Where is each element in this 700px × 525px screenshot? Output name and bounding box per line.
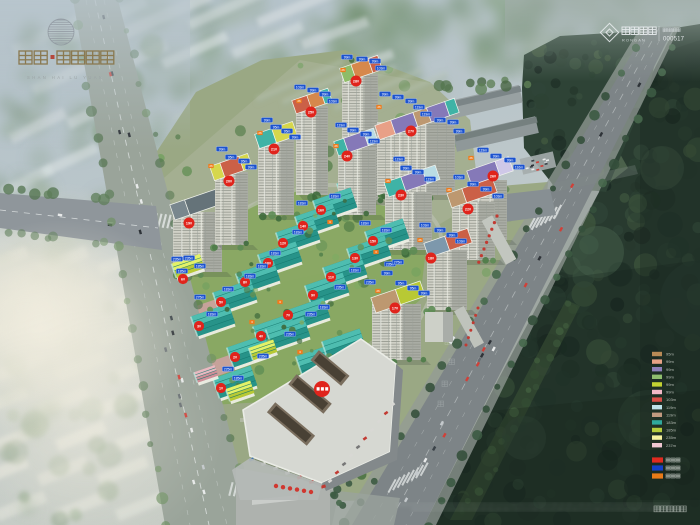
svg-text:119m: 119m bbox=[426, 177, 434, 181]
svg-text:99m: 99m bbox=[264, 118, 271, 122]
svg-text:99m: 99m bbox=[437, 118, 444, 122]
svg-text:183m: 183m bbox=[258, 264, 267, 268]
svg-text:95m: 95m bbox=[398, 281, 405, 285]
svg-text:99m: 99m bbox=[322, 92, 329, 96]
svg-text:183m: 183m bbox=[331, 194, 340, 198]
svg-text:22#: 22# bbox=[465, 207, 471, 211]
svg-text:14#: 14# bbox=[300, 224, 306, 228]
svg-text:235m: 235m bbox=[336, 285, 345, 289]
svg-text:99m: 99m bbox=[292, 135, 299, 139]
svg-text:183m: 183m bbox=[271, 251, 280, 255]
svg-text:99m: 99m bbox=[415, 170, 422, 174]
svg-text:99m: 99m bbox=[408, 99, 415, 103]
svg-text:183m: 183m bbox=[298, 201, 307, 205]
svg-text:275m: 275m bbox=[394, 260, 403, 264]
svg-text:19#: 19# bbox=[186, 221, 192, 225]
svg-text:235m: 235m bbox=[286, 332, 295, 336]
svg-text:SHAN HAI LU YUAN: SHAN HAI LU YUAN bbox=[27, 75, 104, 80]
svg-text:18#: 18# bbox=[428, 256, 434, 260]
svg-text:99m: 99m bbox=[372, 59, 379, 63]
svg-text:103m: 103m bbox=[421, 223, 430, 227]
svg-text:16#: 16# bbox=[318, 208, 324, 212]
svg-text:185m: 185m bbox=[234, 376, 243, 380]
svg-text:15#: 15# bbox=[370, 239, 376, 243]
svg-text:183m: 183m bbox=[294, 230, 303, 234]
svg-text:95m: 95m bbox=[273, 125, 280, 129]
svg-text:183m: 183m bbox=[224, 287, 233, 291]
svg-text:26: 26 bbox=[386, 179, 390, 183]
svg-text:11#: 11# bbox=[328, 275, 334, 279]
svg-text:103m: 103m bbox=[494, 194, 503, 198]
svg-text:95m: 95m bbox=[410, 286, 417, 290]
svg-text:95m: 95m bbox=[241, 159, 248, 163]
svg-text:99m: 99m bbox=[219, 147, 226, 151]
svg-text:99m: 99m bbox=[248, 165, 255, 169]
svg-text:103m: 103m bbox=[296, 85, 305, 89]
svg-text:99m: 99m bbox=[395, 95, 402, 99]
svg-text:26: 26 bbox=[334, 144, 338, 148]
svg-text:26: 26 bbox=[447, 188, 451, 192]
svg-text:26: 26 bbox=[418, 238, 422, 242]
svg-text:95m: 95m bbox=[228, 155, 235, 159]
svg-text:99m: 99m bbox=[310, 88, 317, 92]
svg-text:8#: 8# bbox=[243, 280, 247, 284]
svg-text:99m: 99m bbox=[350, 128, 357, 132]
svg-text:99m: 99m bbox=[666, 382, 674, 387]
svg-text:275m: 275m bbox=[196, 295, 205, 299]
svg-text:26: 26 bbox=[377, 105, 381, 109]
svg-text:99m: 99m bbox=[344, 55, 351, 59]
svg-text:26: 26 bbox=[297, 99, 301, 103]
svg-text:99m: 99m bbox=[507, 158, 514, 162]
svg-text:235m: 235m bbox=[185, 256, 194, 260]
svg-text:183m: 183m bbox=[320, 305, 329, 309]
svg-text:116m: 116m bbox=[515, 165, 523, 169]
svg-text:235m: 235m bbox=[366, 280, 375, 284]
svg-text:26: 26 bbox=[258, 131, 262, 135]
svg-text:27#: 27# bbox=[408, 129, 414, 133]
svg-text:183m: 183m bbox=[361, 221, 370, 225]
svg-text:119m: 119m bbox=[479, 148, 487, 152]
svg-text:235m: 235m bbox=[173, 257, 182, 261]
svg-text:119m: 119m bbox=[666, 405, 676, 410]
svg-text:237m: 237m bbox=[666, 443, 677, 448]
svg-text:24#: 24# bbox=[344, 154, 350, 158]
svg-text:99m: 99m bbox=[359, 57, 366, 61]
svg-text:119m: 119m bbox=[395, 157, 403, 161]
svg-text:28#: 28# bbox=[353, 79, 359, 83]
svg-text:5#: 5# bbox=[219, 300, 223, 304]
svg-text:21#: 21# bbox=[271, 147, 277, 151]
svg-text:95m: 95m bbox=[284, 129, 291, 133]
svg-text:7#: 7# bbox=[286, 313, 290, 317]
svg-text:99m: 99m bbox=[450, 120, 457, 124]
svg-text:99m: 99m bbox=[470, 182, 477, 186]
svg-text:119m: 119m bbox=[666, 412, 676, 417]
svg-text:185m: 185m bbox=[666, 428, 677, 433]
svg-text:25#: 25# bbox=[308, 110, 314, 114]
svg-text:103m: 103m bbox=[455, 175, 464, 179]
svg-text:20#: 20# bbox=[226, 179, 232, 183]
svg-text:26: 26 bbox=[341, 68, 345, 72]
svg-text:119m: 119m bbox=[415, 105, 423, 109]
svg-text:99m: 99m bbox=[449, 233, 456, 237]
svg-text:183m: 183m bbox=[666, 420, 677, 425]
svg-text:225m: 225m bbox=[224, 367, 233, 371]
svg-text:26#: 26# bbox=[490, 174, 496, 178]
svg-text:103m: 103m bbox=[377, 66, 386, 70]
svg-text:95m: 95m bbox=[666, 352, 674, 357]
svg-text:183m: 183m bbox=[246, 274, 255, 278]
svg-text:3#: 3# bbox=[197, 324, 201, 328]
svg-text:99m: 99m bbox=[666, 359, 674, 364]
svg-text:99m: 99m bbox=[384, 271, 391, 275]
svg-text:17#: 17# bbox=[392, 306, 398, 310]
svg-text:26: 26 bbox=[209, 164, 213, 168]
svg-text:9#: 9# bbox=[311, 293, 315, 297]
svg-text:235m: 235m bbox=[307, 312, 316, 316]
svg-text:99m: 99m bbox=[666, 374, 674, 379]
svg-text:99m: 99m bbox=[437, 228, 444, 232]
svg-text:183m: 183m bbox=[208, 312, 217, 316]
svg-text:4#: 4# bbox=[259, 334, 263, 338]
svg-text:13#: 13# bbox=[352, 256, 358, 260]
svg-text:99m: 99m bbox=[456, 129, 463, 133]
svg-text:185m: 185m bbox=[178, 269, 187, 273]
svg-text:235m: 235m bbox=[259, 354, 268, 358]
svg-text:000517: 000517 bbox=[663, 37, 685, 43]
svg-text:119m: 119m bbox=[422, 112, 430, 116]
svg-text:99m: 99m bbox=[666, 367, 674, 372]
svg-text:99m: 99m bbox=[493, 154, 500, 158]
svg-text:119m: 119m bbox=[337, 123, 345, 127]
svg-text:99m: 99m bbox=[382, 92, 389, 96]
svg-text:185m: 185m bbox=[196, 264, 205, 268]
svg-text:2#: 2# bbox=[233, 355, 237, 359]
svg-text:23#: 23# bbox=[398, 193, 404, 197]
svg-text:99m: 99m bbox=[666, 390, 674, 395]
svg-text:1#: 1# bbox=[219, 386, 223, 390]
svg-text:119m: 119m bbox=[370, 139, 378, 143]
svg-text:183m: 183m bbox=[382, 228, 391, 232]
svg-text:99m: 99m bbox=[421, 291, 428, 295]
svg-text:26: 26 bbox=[376, 289, 380, 293]
svg-text:6#: 6# bbox=[181, 277, 185, 281]
svg-text:183m: 183m bbox=[351, 268, 360, 272]
svg-text:99m: 99m bbox=[403, 166, 410, 170]
svg-text:103m: 103m bbox=[329, 99, 338, 103]
svg-text:RONGAN: RONGAN bbox=[622, 39, 646, 43]
svg-text:235m: 235m bbox=[666, 435, 677, 440]
svg-text:12#: 12# bbox=[280, 241, 286, 245]
svg-text:99m: 99m bbox=[363, 132, 370, 136]
svg-text:99m: 99m bbox=[483, 187, 490, 191]
svg-text:103m: 103m bbox=[666, 397, 677, 402]
svg-text:26: 26 bbox=[469, 156, 473, 160]
svg-text:103m: 103m bbox=[457, 239, 466, 243]
